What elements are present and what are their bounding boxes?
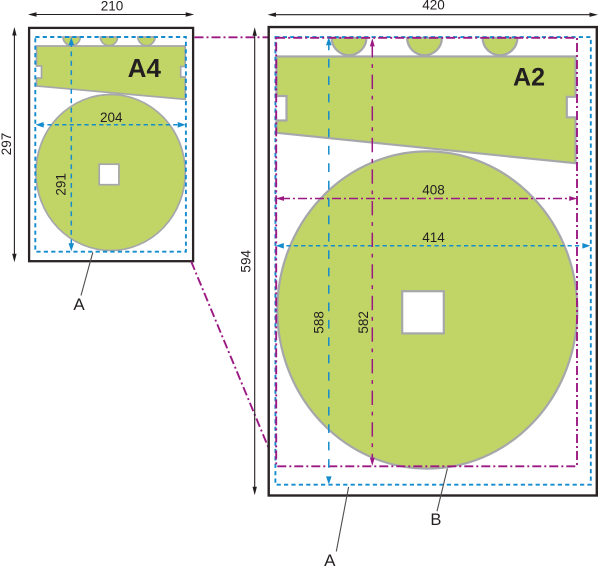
svg-text:204: 204 bbox=[100, 110, 123, 125]
svg-text:420: 420 bbox=[422, 0, 445, 12]
svg-text:A: A bbox=[73, 295, 85, 314]
svg-text:210: 210 bbox=[101, 0, 124, 13]
svg-text:A: A bbox=[324, 551, 336, 570]
svg-text:297: 297 bbox=[0, 133, 14, 156]
svg-text:A2: A2 bbox=[513, 64, 545, 92]
svg-text:B: B bbox=[430, 511, 441, 529]
svg-text:588: 588 bbox=[311, 311, 326, 334]
svg-text:582: 582 bbox=[356, 311, 371, 334]
svg-text:414: 414 bbox=[422, 230, 445, 245]
svg-text:594: 594 bbox=[238, 250, 253, 273]
svg-text:291: 291 bbox=[53, 173, 68, 196]
svg-text:408: 408 bbox=[422, 183, 445, 198]
svg-text:A4: A4 bbox=[128, 53, 162, 83]
